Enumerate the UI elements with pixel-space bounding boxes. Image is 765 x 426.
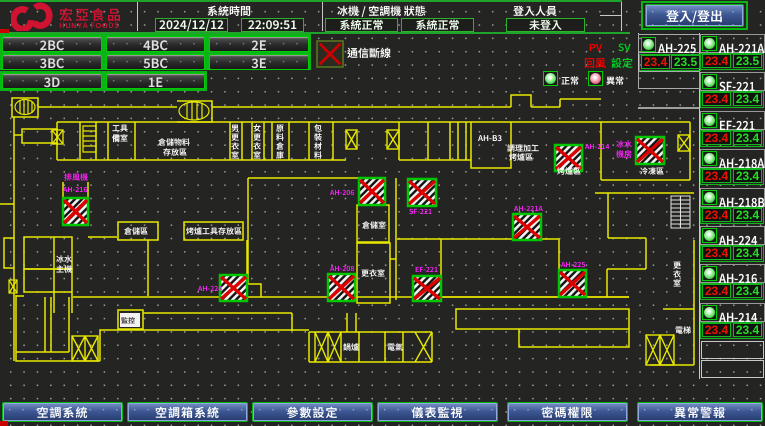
svg-text:室: 室 [673, 278, 681, 289]
svg-text:AH-214: AH-214 [584, 142, 609, 152]
svg-text:監控: 監控 [121, 316, 135, 326]
svg-text:AH-225: AH-225 [560, 260, 585, 270]
svg-text:機房: 機房 [616, 149, 632, 160]
svg-text:電梯: 電梯 [675, 325, 691, 336]
svg-text:烤爐區: 烤爐區 [509, 152, 533, 163]
svg-text:料: 料 [314, 150, 322, 161]
svg-text:AH-221A: AH-221A [513, 204, 543, 214]
svg-text:AH-216: AH-216 [62, 185, 87, 195]
svg-text:AH-206: AH-206 [329, 188, 354, 198]
svg-text:倉儲室: 倉儲室 [362, 220, 386, 231]
svg-text:AH-208: AH-208 [329, 264, 354, 274]
svg-text:室: 室 [231, 150, 239, 161]
svg-text:倉儲區: 倉儲區 [124, 226, 148, 237]
svg-text:EF-221: EF-221 [415, 265, 438, 275]
svg-text:烤爐區: 烤爐區 [557, 166, 581, 177]
svg-text:更衣室: 更衣室 [361, 268, 385, 279]
svg-text:備室: 備室 [112, 133, 128, 144]
svg-text:AH-B3: AH-B3 [477, 133, 502, 144]
svg-text:鍋爐: 鍋爐 [343, 342, 359, 353]
svg-text:冷凍區: 冷凍區 [640, 166, 664, 177]
svg-text:存放區: 存放區 [163, 147, 187, 158]
svg-text:SF-221: SF-221 [409, 207, 432, 217]
svg-text:室: 室 [253, 150, 261, 161]
svg-text:排風機: 排風機 [64, 172, 88, 183]
svg-text:AH-224: AH-224 [197, 284, 222, 294]
svg-text:烤爐工具存放區: 烤爐工具存放區 [186, 226, 242, 237]
svg-text:電氣: 電氣 [387, 342, 403, 353]
svg-text:庫: 庫 [276, 150, 284, 161]
svg-text:主機: 主機 [56, 264, 72, 275]
